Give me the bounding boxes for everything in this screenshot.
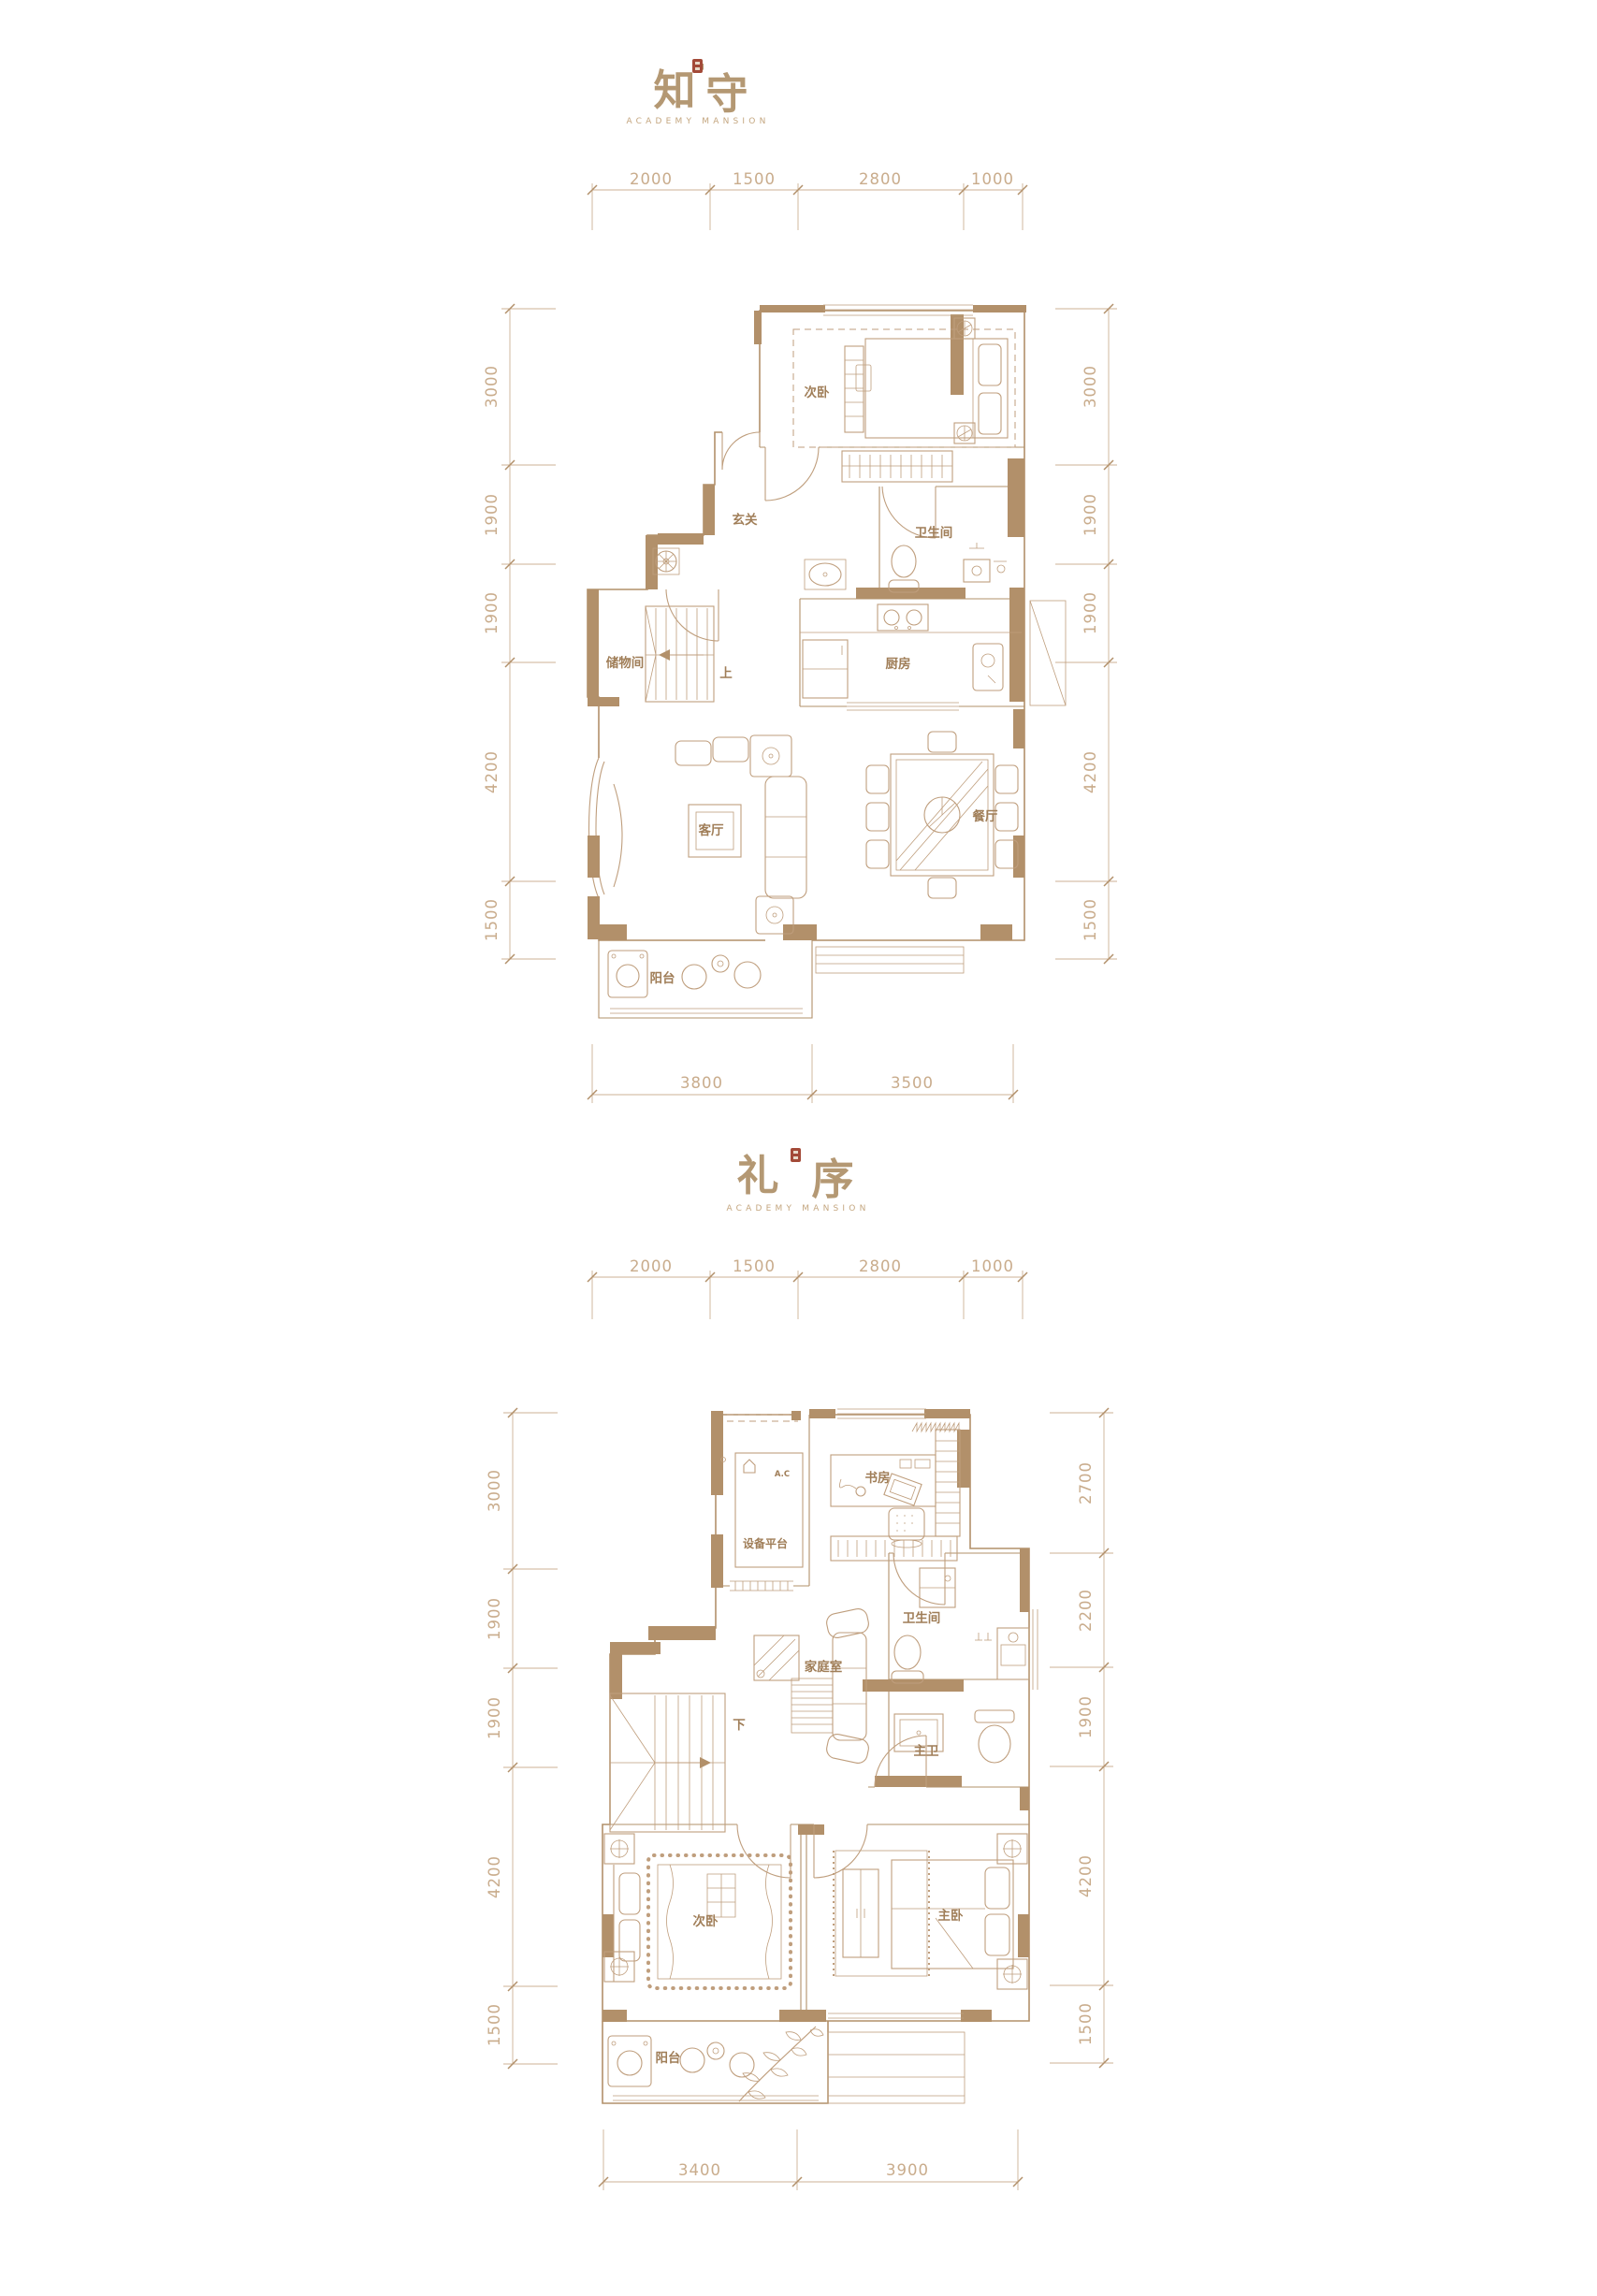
- dim-label: 1500: [733, 1257, 776, 1275]
- plan1-walls: [588, 305, 1066, 1018]
- plan2-dim-left: 3000 1900 1900 4200 1500: [486, 1408, 558, 2069]
- plan1-room-kitchen: 厨房: [800, 604, 1022, 698]
- dim-label: 2000: [630, 1257, 673, 1275]
- dim-label: 4200: [1082, 750, 1099, 793]
- room-label-master: 主卧: [938, 1908, 965, 1924]
- plan1-room-living: 客厅: [614, 735, 806, 934]
- fan-coil-icon: [954, 423, 975, 443]
- dim-label: 2200: [1077, 1589, 1095, 1632]
- plant-icon: [739, 2027, 823, 2101]
- dim-label: 3900: [886, 2161, 929, 2179]
- plan2-room-master: 主卧: [834, 1834, 1027, 1989]
- dim-label: 1000: [971, 170, 1014, 188]
- plan1-subtitle: ACADEMY MANSION: [626, 117, 769, 126]
- plan2-dim-bottom: 3400 3900: [599, 2129, 1023, 2190]
- room-label-storage: 储物间: [605, 655, 645, 671]
- room-label-bedroom2: 次卧: [805, 385, 831, 400]
- dim-label: 1500: [1082, 898, 1099, 941]
- plan2-room-bath: 卫生间: [892, 1568, 1029, 1683]
- stairs-up-label: 上: [719, 666, 733, 681]
- dim-label: 3400: [678, 2161, 721, 2179]
- dim-label: 1500: [733, 170, 776, 188]
- dim-label: 1500: [483, 898, 501, 941]
- dim-label: 1900: [483, 591, 501, 634]
- dim-label: 1900: [486, 1696, 503, 1739]
- plan1-dim-right: 3000 1900 1900 4200 1500: [1055, 304, 1117, 964]
- room-label-living: 客厅: [698, 822, 725, 838]
- plan1-title-left: 知: [653, 65, 695, 115]
- plan2-subtitle: ACADEMY MANSION: [726, 1204, 869, 1213]
- plan1-room-balcony: 阳台: [608, 951, 761, 997]
- dim-label: 4200: [1077, 1854, 1095, 1897]
- dim-label: 4200: [483, 750, 501, 793]
- dim-label: 3000: [1082, 365, 1099, 408]
- dim-label: 1900: [1082, 591, 1099, 634]
- plan1-dim-left: 3000 1900 1900 4200 1500: [483, 304, 556, 964]
- plan1: 知 ' 守 ACADEMY MANSION 2000 1500 2800 100…: [483, 59, 1117, 1103]
- plan2-walls: [603, 1409, 1038, 2103]
- dim-label: 1000: [971, 1257, 1014, 1275]
- plan2-room-balcony: 阳台: [608, 2027, 823, 2101]
- plan1-dim-top: 2000 1500 2800 1000: [588, 170, 1027, 230]
- dim-label: 2700: [1077, 1461, 1095, 1504]
- plan2: 礼 ' 序 ACADEMY MANSION 2000 1500 2800 100…: [486, 1148, 1113, 2190]
- room-label-foyer: 玄关: [733, 512, 759, 528]
- plan2-room-study: 书房: [831, 1430, 960, 1561]
- plan2-seal-icon: [791, 1148, 801, 1162]
- fan-coil-icon: [997, 1834, 1027, 1864]
- plan2-room-bedroom2: 次卧: [604, 1834, 791, 1988]
- plan1-room-storage: 储物间 上: [605, 606, 733, 702]
- floor-plan-page: 知 ' 守 ACADEMY MANSION 2000 1500 2800 100…: [0, 0, 1597, 2296]
- dim-label: 3500: [891, 1074, 934, 1092]
- room-label-balcony: 阳台: [650, 970, 675, 986]
- room-label-balcony: 阳台: [656, 2050, 681, 2066]
- dim-label: 1900: [483, 493, 501, 536]
- plan1-title-right: 守: [705, 69, 748, 119]
- dim-label: 1900: [486, 1597, 503, 1640]
- plan2-doors: [737, 1553, 945, 1878]
- plan1-title-block: 知 ' 守 ACADEMY MANSION: [626, 59, 769, 126]
- room-label-bath: 卫生间: [915, 525, 953, 541]
- room-label-study: 书房: [865, 1470, 891, 1486]
- room-label-masterbath: 主卫: [914, 1743, 940, 1759]
- plan1-doors: [666, 432, 936, 641]
- plan2-room-equipment: A.C 设备平台: [721, 1453, 804, 1567]
- room-label-bedroom2: 次卧: [693, 1913, 719, 1929]
- fan-coil-icon: [997, 1959, 1027, 1989]
- ac-label: A.C: [775, 1470, 790, 1479]
- plan2-dim-right: 2700 2200 1900 4200 1500: [1050, 1408, 1113, 2068]
- plan1-room-bath: 卫生间: [889, 525, 1007, 592]
- plan2-dim-top: 2000 1500 2800 1000: [588, 1257, 1027, 1319]
- room-label-equipment: 设备平台: [743, 1536, 788, 1550]
- room-label-kitchen: 厨房: [886, 656, 911, 672]
- room-label-dining: 餐厅: [972, 808, 999, 824]
- fan-coil-icon: [604, 1834, 634, 1864]
- dim-label: 3800: [680, 1074, 723, 1092]
- plan1-room-bedroom2: 次卧: [793, 318, 1015, 482]
- dim-label: 3000: [483, 365, 501, 408]
- plan1-room-dining: 餐厅: [866, 732, 1018, 898]
- dim-label: 4200: [486, 1855, 503, 1898]
- plan1-room-foyer: 玄关: [653, 512, 846, 589]
- room-label-family: 家庭室: [805, 1659, 843, 1675]
- plan2-room-masterbath: 主卫: [894, 1710, 1014, 1763]
- dim-label: 3000: [486, 1469, 503, 1512]
- stairs-down-label: 下: [733, 1718, 746, 1733]
- plan1-seal-icon: [692, 59, 703, 73]
- vent-fan-icon: [656, 551, 676, 572]
- plan2-title-block: 礼 ' 序 ACADEMY MANSION: [726, 1148, 869, 1213]
- floor-plan-canvas: 知 ' 守 ACADEMY MANSION 2000 1500 2800 100…: [0, 0, 1597, 2296]
- dim-label: 1900: [1077, 1695, 1095, 1738]
- plan2-title-right: 序: [811, 1155, 853, 1204]
- room-label-bath: 卫生间: [903, 1610, 941, 1626]
- dim-label: 1500: [1077, 2002, 1095, 2045]
- dim-label: 2800: [859, 1257, 902, 1275]
- plan2-title-left: 礼: [736, 1151, 778, 1200]
- dim-label: 1500: [486, 2003, 503, 2046]
- dim-label: 2000: [630, 170, 673, 188]
- dim-label: 1900: [1082, 493, 1099, 536]
- plan1-dim-bottom: 3800 3500: [588, 1044, 1018, 1103]
- dim-label: 2800: [859, 170, 902, 188]
- plan2-room-stairs: 下: [610, 1693, 746, 1832]
- plan2-room-family: 家庭室: [754, 1607, 870, 1766]
